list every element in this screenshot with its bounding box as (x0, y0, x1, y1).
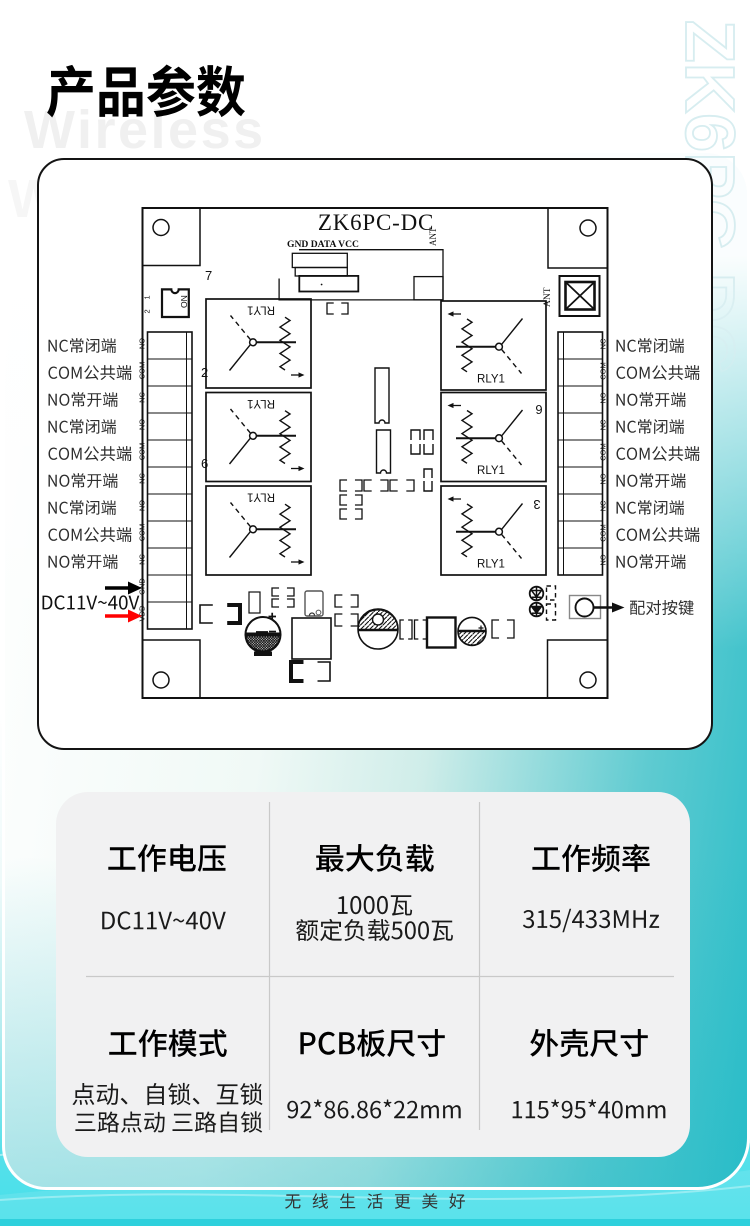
svg-text:COM: COM (599, 524, 608, 542)
svg-text:NC: NC (599, 419, 608, 430)
svg-text:NC: NC (599, 338, 608, 349)
svg-text:NO: NO (599, 473, 608, 484)
svg-text:1: 1 (143, 295, 152, 299)
svg-text:3: 3 (533, 497, 540, 512)
svg-text:ZK6PC-DC: ZK6PC-DC (318, 210, 434, 235)
svg-text:NO: NO (138, 338, 147, 349)
svg-text:ON: ON (179, 295, 189, 308)
svg-text:ANT: ANT (543, 287, 553, 307)
svg-text:NO: NO (138, 500, 147, 511)
svg-text:NO: NO (599, 554, 608, 565)
svg-text:GND DATA VCC: GND DATA VCC (287, 239, 359, 250)
svg-text:COM: COM (599, 362, 608, 380)
svg-text:2: 2 (143, 309, 152, 313)
svg-text:COM: COM (138, 443, 147, 461)
svg-text:NC: NC (138, 554, 147, 565)
svg-text:ANT: ANT (428, 227, 438, 246)
svg-text:6: 6 (535, 402, 542, 417)
svg-text:GND: GND (138, 578, 147, 595)
svg-text:COM: COM (599, 443, 608, 461)
svg-text:7: 7 (205, 268, 212, 283)
svg-text:NC: NC (138, 473, 147, 484)
svg-text:COM: COM (138, 524, 147, 542)
svg-text:6: 6 (201, 456, 208, 471)
svg-text:NO: NO (599, 392, 608, 403)
svg-text:NO: NO (138, 419, 147, 430)
svg-text:NC: NC (138, 392, 147, 403)
svg-text:2: 2 (201, 365, 208, 380)
svg-text:COM: COM (138, 362, 147, 380)
svg-text:NC: NC (599, 500, 608, 511)
svg-text:VDD: VDD (138, 605, 147, 621)
